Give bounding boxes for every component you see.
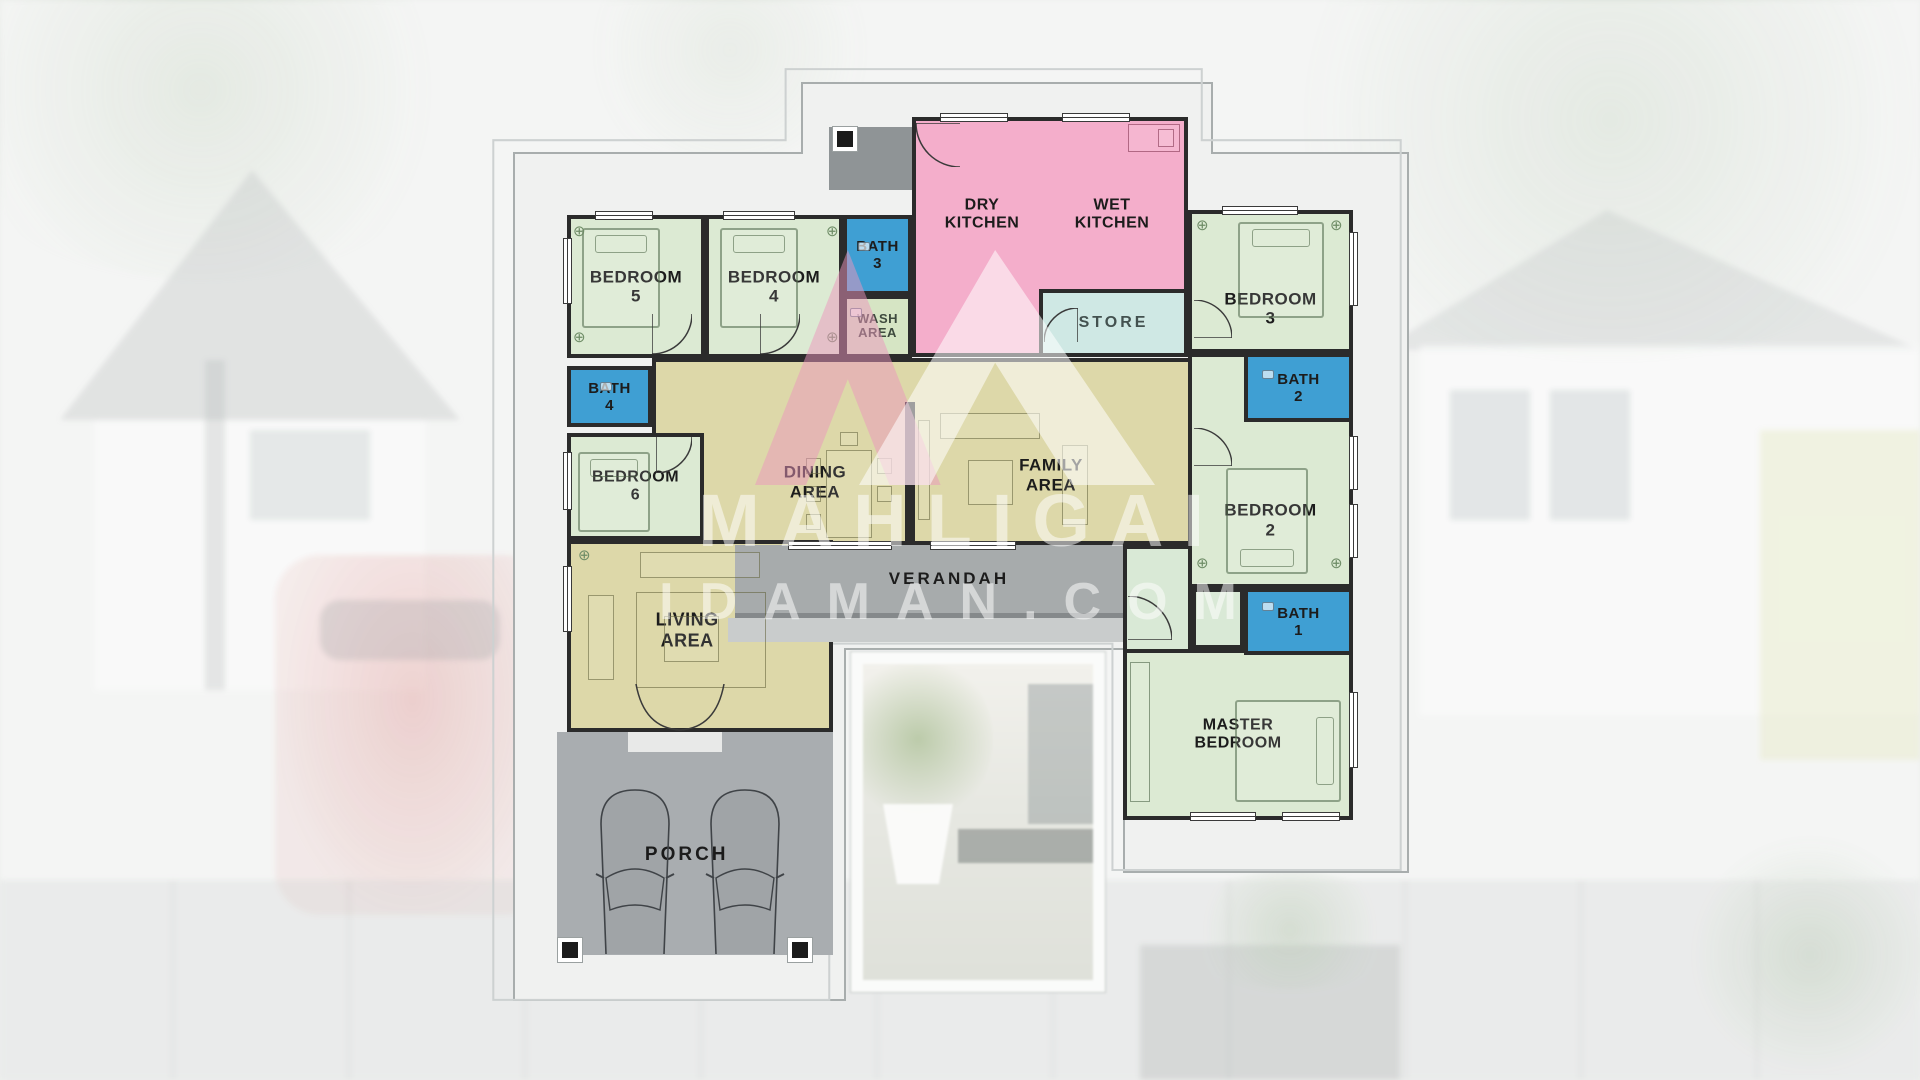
coffee-table (968, 460, 1013, 505)
ceiling-fan-icon: ⊕ (1196, 218, 1209, 233)
window-marker (1062, 113, 1130, 122)
window-marker (563, 238, 572, 304)
door-arc (916, 123, 960, 167)
window-marker (930, 541, 1016, 550)
door-glass (1028, 684, 1105, 824)
washing-machine (850, 308, 862, 317)
coffee-table (664, 616, 719, 662)
dining-chair (877, 486, 892, 502)
bench (958, 829, 1098, 863)
bed (578, 452, 650, 532)
bed (582, 228, 660, 328)
window-marker (563, 452, 572, 510)
window-marker (1349, 436, 1358, 490)
window-marker (723, 211, 795, 220)
window-marker (1349, 232, 1358, 306)
pillow (1252, 229, 1309, 247)
bed (720, 228, 798, 328)
window-marker (788, 541, 892, 550)
window-marker (1349, 692, 1358, 768)
door-arc (1128, 596, 1172, 640)
wardrobe (1130, 662, 1150, 802)
tv-divider-wall (905, 402, 915, 543)
planter-pot (883, 804, 953, 884)
ceiling-fan-icon: ⊕ (578, 548, 591, 563)
double-door-arc (634, 684, 726, 732)
bed (1235, 700, 1341, 802)
pillow (1240, 549, 1295, 567)
ceiling-fan-icon: ⊕ (1196, 556, 1209, 571)
tv-cabinet (918, 420, 930, 520)
door-arc (760, 314, 800, 354)
entry-photo-cutout (851, 652, 1105, 992)
dining-chair (806, 458, 821, 474)
window-marker (1349, 504, 1358, 558)
ceiling-fan-icon: ⊕ (1330, 556, 1343, 571)
ceiling-fan-icon: ⊕ (826, 330, 839, 345)
window-marker (940, 113, 1008, 122)
dining-chair (806, 486, 821, 502)
toilet (1262, 602, 1274, 611)
ceiling-fan-icon: ⊕ (573, 224, 586, 239)
sofa (940, 413, 1040, 439)
column-marker (558, 938, 582, 962)
details-layer: ⊕ ⊕ ⊕ ⊕ ⊕ ⊕ ⊕ ⊕ ⊕ (0, 0, 1920, 1080)
toilet (1262, 370, 1274, 379)
floor-plan-page: LIVING AREAVERANDAHPORCHSTOREBEDROOM 5BE… (0, 0, 1920, 1080)
bed (1238, 222, 1324, 318)
window-marker (595, 211, 653, 220)
plant-blob (851, 654, 993, 824)
window-marker (563, 566, 572, 632)
door-arc (1044, 308, 1078, 342)
pillow (1316, 717, 1334, 786)
window-marker (1190, 812, 1256, 821)
door-arc (656, 437, 692, 473)
car-outline (702, 782, 788, 958)
dining-table (826, 450, 872, 538)
sofa (640, 552, 760, 578)
car-outline (592, 782, 678, 958)
window-marker (1222, 206, 1298, 215)
column-marker (788, 938, 812, 962)
sofa (588, 595, 614, 680)
toilet (600, 382, 612, 391)
dining-chair (840, 432, 858, 446)
ceiling-fan-icon: ⊕ (826, 224, 839, 239)
bed (1226, 468, 1308, 574)
window-marker (1282, 812, 1340, 821)
door-arc (652, 314, 692, 354)
kitchen-sink-basin (1158, 129, 1174, 147)
door-arc (1194, 300, 1232, 338)
door-arc (1194, 428, 1232, 466)
ceiling-fan-icon: ⊕ (573, 330, 586, 345)
toilet (858, 242, 870, 251)
sofa (1062, 445, 1088, 525)
column-marker (833, 127, 857, 151)
pillow (733, 235, 785, 253)
pillow (595, 235, 647, 253)
dining-chair (806, 514, 821, 530)
ceiling-fan-icon: ⊕ (1330, 218, 1343, 233)
dining-chair (877, 458, 892, 474)
pillow (590, 459, 638, 477)
